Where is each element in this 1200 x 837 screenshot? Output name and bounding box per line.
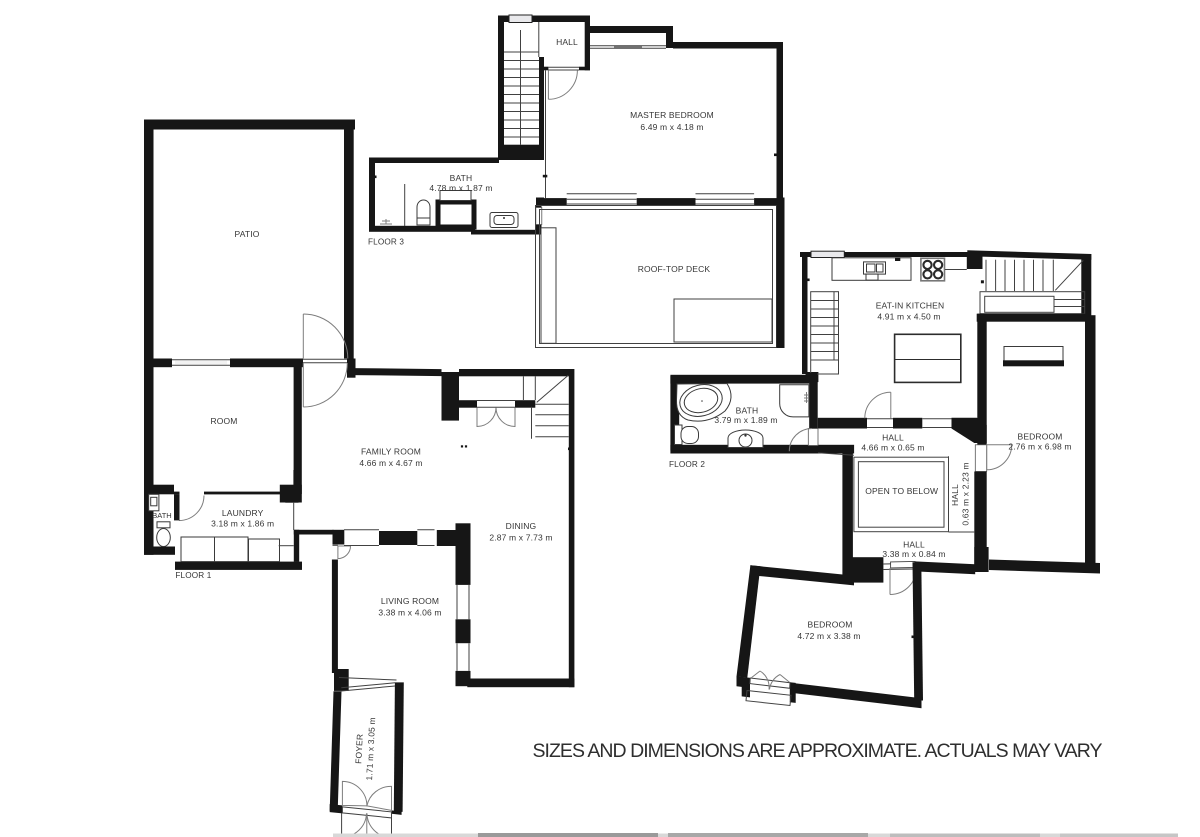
svg-text:2.87 m x 7.73 m: 2.87 m x 7.73 m [489,532,552,542]
svg-text:BEDROOM: BEDROOM [808,620,853,630]
svg-text:OPEN TO BELOW: OPEN TO BELOW [865,486,938,496]
svg-text:BEDROOM: BEDROOM [1018,432,1063,442]
svg-text:HALL: HALL [903,540,925,550]
svg-text:4.72 m x 3.38 m: 4.72 m x 3.38 m [797,631,860,641]
svg-text:BATH: BATH [152,511,171,520]
svg-text:3.18 m x 1.86 m: 3.18 m x 1.86 m [211,519,274,529]
svg-text:HALL: HALL [556,37,578,47]
svg-text:MASTER BEDROOM: MASTER BEDROOM [630,110,714,120]
svg-text:ROOF-TOP DECK: ROOF-TOP DECK [638,264,711,274]
svg-text:3.38 m x 0.84 m: 3.38 m x 0.84 m [882,549,945,559]
svg-text:LIVING ROOM: LIVING ROOM [381,596,439,606]
svg-text:FOYER: FOYER [353,734,365,765]
svg-text:LAUNDRY: LAUNDRY [222,508,264,518]
svg-text:BATH: BATH [736,406,759,416]
svg-text:PATIO: PATIO [235,229,260,239]
svg-text:FLOOR 2: FLOOR 2 [669,460,705,469]
svg-text:SIZES AND DIMENSIONS ARE APPRO: SIZES AND DIMENSIONS ARE APPROXIMATE. AC… [533,740,1103,762]
svg-text:4.91 m x 4.50 m: 4.91 m x 4.50 m [877,312,940,322]
svg-text:HALL: HALL [950,484,960,506]
svg-text:3.79 m x 1.89 m: 3.79 m x 1.89 m [714,415,777,425]
svg-text:DINING: DINING [506,521,537,531]
svg-text:4.78 m x 1.87 m: 4.78 m x 1.87 m [429,183,492,193]
svg-text:6.49 m x 4.18 m: 6.49 m x 4.18 m [640,122,703,132]
svg-text:0.63 m x 2.23 m: 0.63 m x 2.23 m [961,462,971,525]
svg-text:2.76 m x 6.98 m: 2.76 m x 6.98 m [1008,442,1071,452]
svg-text:ROOM: ROOM [210,416,237,426]
svg-text:4.66 m x 4.67 m: 4.66 m x 4.67 m [359,458,422,468]
svg-text:FLOOR 3: FLOOR 3 [368,238,404,247]
svg-text:BATH: BATH [450,173,473,183]
svg-text:EAT-IN KITCHEN: EAT-IN KITCHEN [876,301,945,311]
svg-text:3.38 m x 4.06 m: 3.38 m x 4.06 m [378,608,441,618]
svg-text:FLOOR 1: FLOOR 1 [175,571,211,580]
svg-text:FAMILY ROOM: FAMILY ROOM [361,447,421,457]
svg-text:HALL: HALL [882,433,904,443]
svg-text:4.66 m x 0.65 m: 4.66 m x 0.65 m [861,442,924,452]
